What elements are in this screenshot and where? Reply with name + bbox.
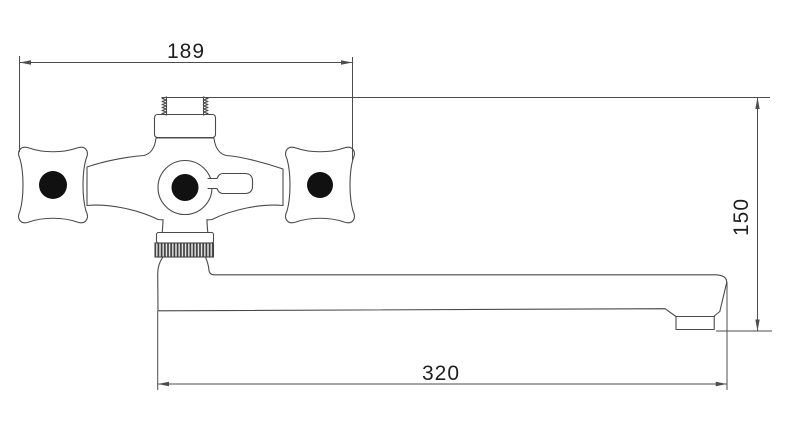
technical-drawing-page: 189 150 320	[0, 0, 800, 444]
dim-150-arrow-bottom	[755, 320, 759, 332]
dim-320-arrow-right	[716, 382, 727, 386]
knurled-nut	[155, 243, 214, 257]
faucet-technical-drawing: 189 150 320	[0, 0, 800, 444]
shower-outlet-thread-right	[204, 97, 209, 115]
spout-neck	[162, 220, 208, 233]
left-handle-cap-dot	[39, 171, 67, 199]
shower-outlet-thread-left	[162, 97, 167, 115]
dim-189-arrow-left	[20, 60, 32, 64]
dim-label-right-height: 150	[730, 198, 753, 236]
dim-label-bottom-length: 320	[422, 362, 460, 385]
spout-collar	[157, 233, 214, 244]
right-handle-cap-dot	[307, 172, 333, 198]
dim-label-top-width: 189	[167, 40, 205, 63]
shower-outlet-thread-core	[162, 97, 208, 115]
diverter-cap-dot	[172, 174, 199, 201]
dim-150-arrow-top	[755, 98, 759, 110]
spout-outline	[158, 257, 727, 330]
dim-320-arrow-left	[158, 382, 169, 386]
dim-189-arrow-right	[341, 60, 353, 64]
shower-outlet-nut	[155, 115, 216, 138]
